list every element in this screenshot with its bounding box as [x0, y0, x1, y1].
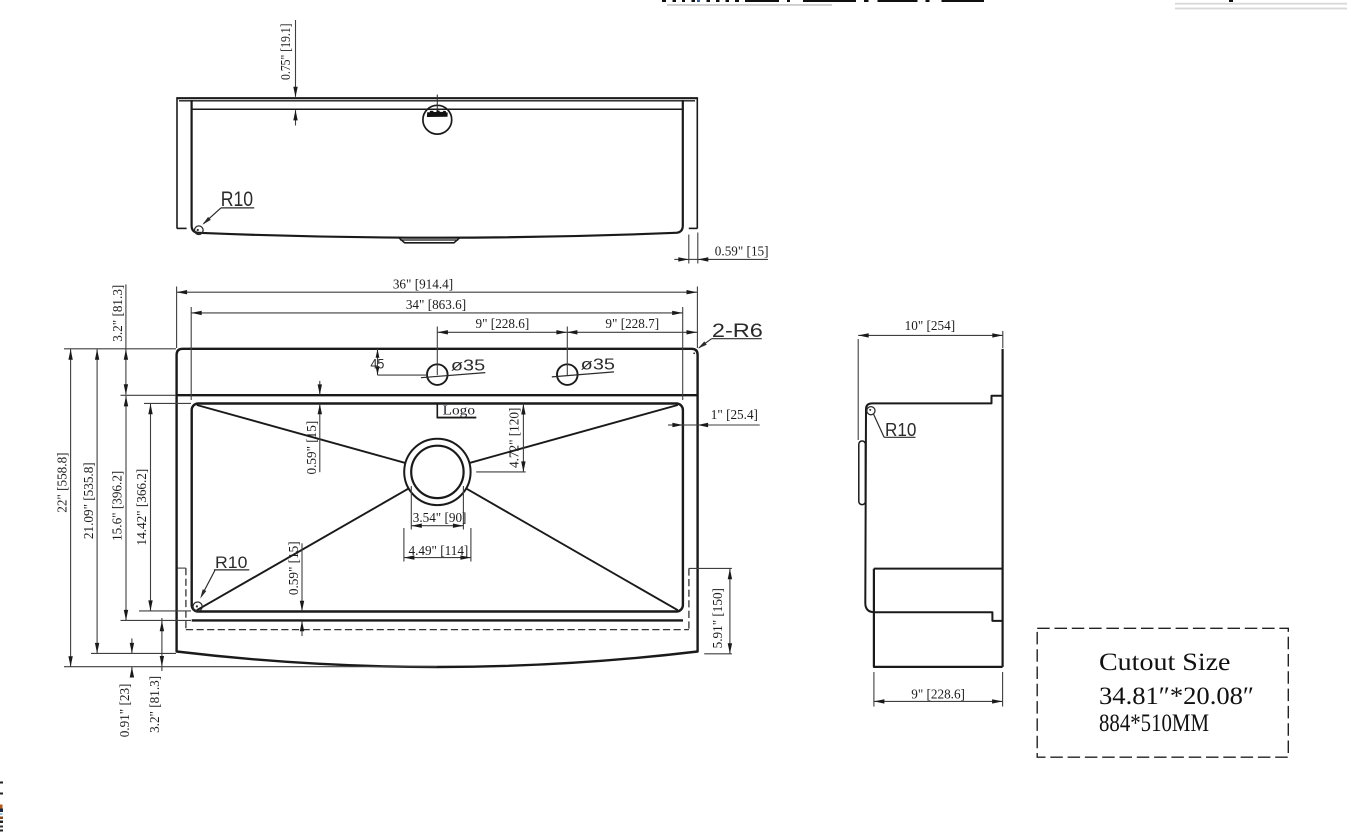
svg-text:9" [228.7]: 9" [228.7]	[605, 316, 659, 331]
svg-text:34.81″*20.08″: 34.81″*20.08″	[1099, 681, 1254, 710]
svg-text:9" [228.6]: 9" [228.6]	[476, 316, 530, 331]
svg-text:36" [914.4]: 36" [914.4]	[393, 277, 453, 292]
svg-text:34" [863.6]: 34" [863.6]	[406, 297, 466, 312]
svg-text:1" [25.4]: 1" [25.4]	[711, 407, 758, 422]
svg-text:3.2" [81.3]: 3.2" [81.3]	[110, 285, 125, 342]
svg-text:Logo: Logo	[443, 402, 476, 417]
svg-text:0.59" [15]: 0.59" [15]	[304, 421, 319, 475]
svg-text:884*510MM: 884*510MM	[1099, 708, 1209, 737]
svg-text:10" [254]: 10" [254]	[905, 318, 955, 333]
svg-text:4.72" [120]: 4.72" [120]	[506, 408, 521, 468]
svg-text:0.75" [19.1]: 0.75" [19.1]	[278, 23, 293, 79]
svg-text:45: 45	[370, 355, 384, 371]
svg-text:4.49" [114]: 4.49" [114]	[408, 543, 468, 558]
svg-text:22" [558.8]: 22" [558.8]	[54, 452, 69, 512]
svg-text:ø35: ø35	[581, 356, 615, 373]
svg-text:ø35: ø35	[451, 357, 485, 374]
svg-text:0.59" [15]: 0.59" [15]	[715, 243, 769, 258]
svg-text:14.42" [366.2]: 14.42" [366.2]	[134, 469, 149, 546]
svg-text:21.09" [535.8]: 21.09" [535.8]	[81, 462, 96, 539]
svg-text:Cutout Size: Cutout Size	[1099, 647, 1231, 676]
svg-text:9" [228.6]: 9" [228.6]	[911, 686, 965, 701]
svg-text:15.6" [396.2]: 15.6" [396.2]	[109, 471, 124, 541]
svg-text:0.91" [23]: 0.91" [23]	[117, 684, 132, 738]
svg-text:3.54" [90]: 3.54" [90]	[413, 510, 467, 525]
svg-text:5.91" [150]: 5.91" [150]	[710, 588, 725, 648]
svg-text:0.59" [15]: 0.59" [15]	[286, 541, 301, 595]
svg-text:3.2" [81.3]: 3.2" [81.3]	[147, 676, 162, 733]
